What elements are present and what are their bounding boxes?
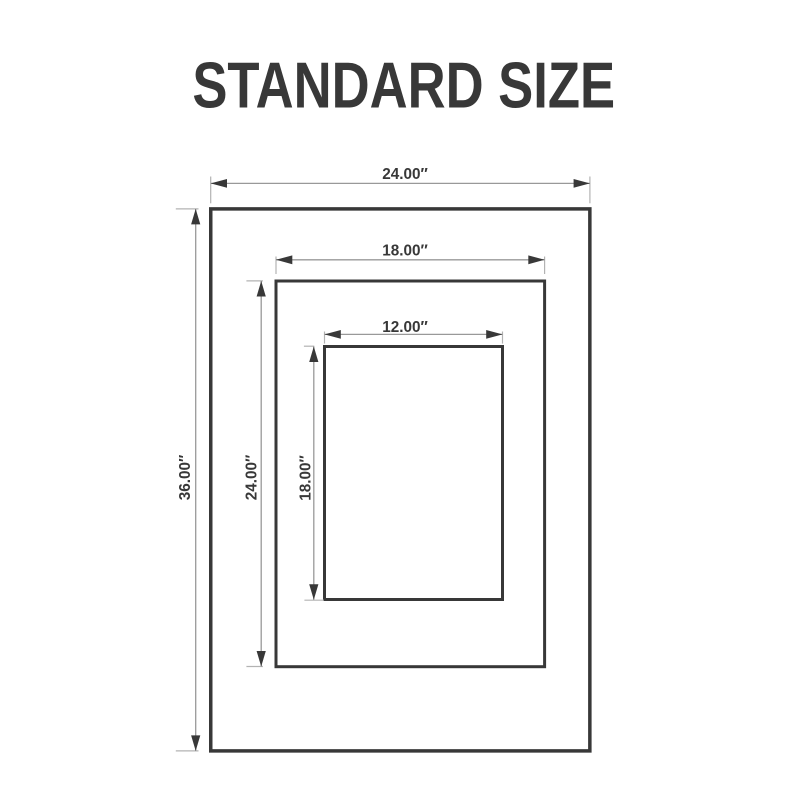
- svg-text:18.00″: 18.00″: [382, 243, 428, 260]
- svg-text:12.00″: 12.00″: [382, 319, 428, 336]
- svg-text:18.00″: 18.00″: [298, 455, 315, 501]
- svg-text:STANDARD SIZE: STANDARD SIZE: [192, 51, 615, 122]
- svg-text:24.00″: 24.00″: [244, 454, 261, 500]
- svg-text:36.00″: 36.00″: [177, 454, 194, 500]
- svg-text:24.00″: 24.00″: [382, 166, 428, 183]
